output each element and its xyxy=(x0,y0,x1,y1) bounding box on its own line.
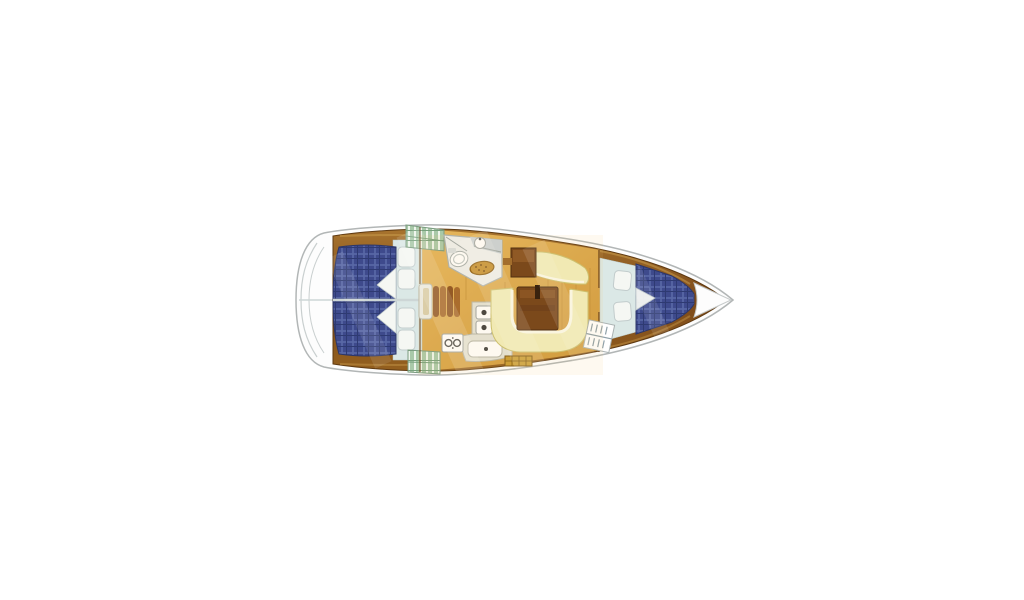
warm-glow xyxy=(418,235,603,375)
pillow xyxy=(398,308,415,328)
pillow xyxy=(398,330,415,350)
boat-floorplan-canvas xyxy=(0,0,1024,600)
pillow xyxy=(613,301,632,321)
boat-floorplan xyxy=(0,0,1024,600)
